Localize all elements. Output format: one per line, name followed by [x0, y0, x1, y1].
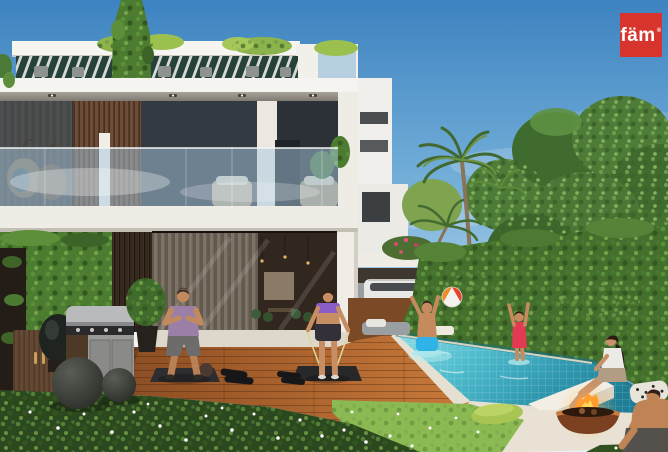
rooftop-pergola [16, 56, 298, 78]
beach-ball [442, 287, 462, 307]
fam-logo: fäm® [620, 13, 662, 57]
glass-balustrade [0, 148, 338, 207]
fam-logo-text: fäm [620, 26, 655, 45]
fam-logo-mark: ® [657, 28, 662, 34]
medicine-ball [199, 363, 213, 377]
villa-render [0, 0, 668, 452]
screenshot-root: fäm® [0, 0, 668, 452]
